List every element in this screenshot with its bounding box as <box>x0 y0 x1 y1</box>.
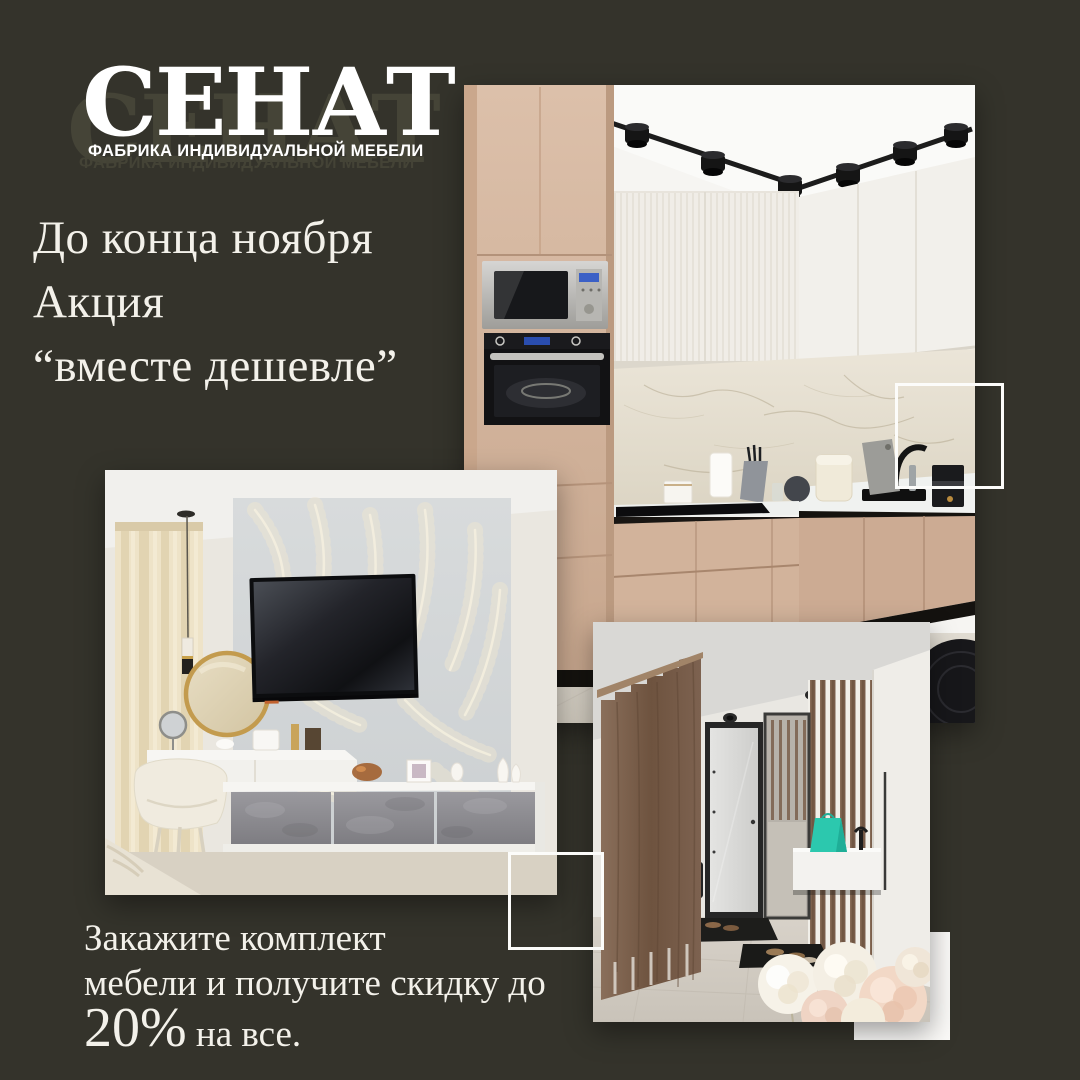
offer-text: Закажите комплект мебели и получите скид… <box>84 916 546 1057</box>
hallway-illustration <box>593 622 930 1022</box>
discount-value: 20% <box>84 997 187 1059</box>
microwave <box>482 261 608 329</box>
tv <box>249 574 418 704</box>
logo: СЕНАТ ФАБРИКА ИНДИВИДУАЛЬНОЙ МЕБЕЛИ СЕНА… <box>82 56 502 186</box>
hallway-photo <box>593 622 930 1022</box>
promo-text: До конца ноября Акция “вместе дешевле” <box>33 206 398 398</box>
decor-square-outline-kitchen <box>895 383 1004 489</box>
oven <box>484 333 610 425</box>
brand-name: СЕНАТ <box>82 56 454 150</box>
offer-line-3: 20% на все. <box>84 1006 546 1057</box>
offer-line-3-tail: на все. <box>187 1014 302 1055</box>
wood-partition <box>597 652 703 1000</box>
living-room-photo <box>105 470 557 895</box>
offer-line-1: Закажите комплект <box>84 916 546 961</box>
promo-line-2: Акция <box>33 270 398 334</box>
wardrobe <box>873 650 930 987</box>
living-room-illustration <box>105 470 557 895</box>
paper-towel <box>710 453 732 497</box>
slat-accent-wall <box>808 680 876 955</box>
promo-line-1: До конца ноября <box>33 206 398 270</box>
entrance-door <box>705 722 763 918</box>
tv-console <box>223 782 545 857</box>
promo-line-3: “вместе дешевле” <box>33 334 398 398</box>
teapot <box>784 476 810 502</box>
brand-tagline: ФАБРИКА ИНДИВИДУАЛЬНОЙ МЕБЕЛИ <box>88 142 424 161</box>
table-mirror <box>160 712 186 738</box>
